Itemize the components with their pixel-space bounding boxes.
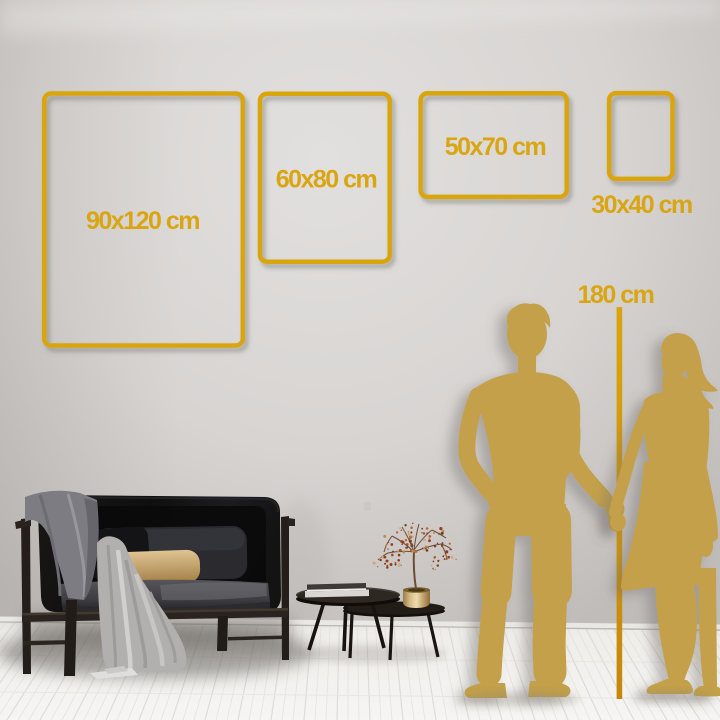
svg-text:60x80 cm: 60x80 cm [276, 166, 377, 194]
svg-text:90x120 cm: 90x120 cm [86, 207, 199, 235]
svg-text:50x70 cm: 50x70 cm [445, 133, 546, 161]
svg-text:180 cm: 180 cm [578, 281, 654, 309]
svg-text:30x40 cm: 30x40 cm [591, 191, 692, 219]
